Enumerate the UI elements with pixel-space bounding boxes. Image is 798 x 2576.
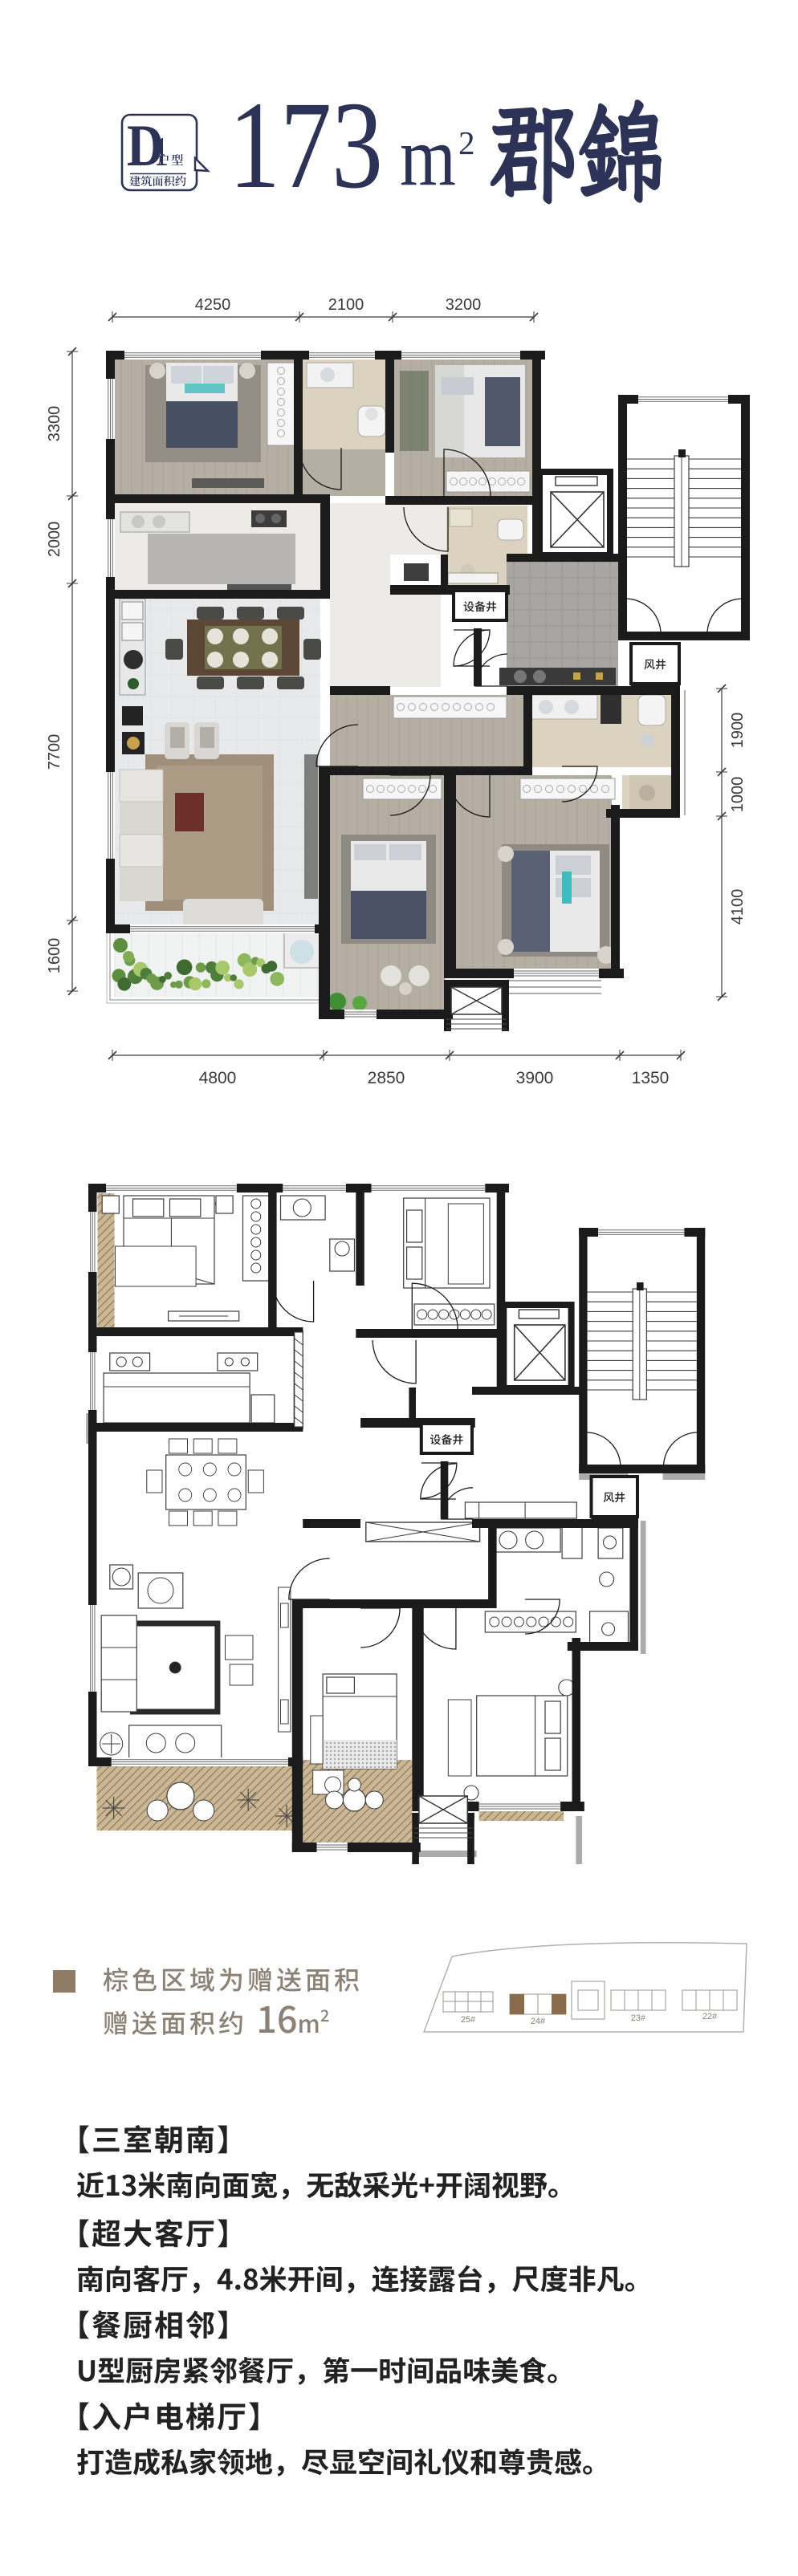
svg-text:4100: 4100: [729, 889, 747, 925]
svg-text:4250: 4250: [195, 296, 231, 314]
svg-text:2850: 2850: [368, 1069, 405, 1087]
svg-text:1600: 1600: [46, 938, 63, 974]
svg-text:m: m: [400, 109, 456, 203]
svg-text:建筑面积约: 建筑面积约: [129, 173, 186, 189]
svg-text:2: 2: [458, 124, 475, 161]
svg-text:设备井: 设备井: [463, 599, 497, 615]
svg-text:7700: 7700: [46, 734, 63, 770]
svg-text:3300: 3300: [46, 406, 63, 442]
svg-text:设备井: 设备井: [430, 1432, 463, 1448]
svg-text:25#: 25#: [461, 2015, 476, 2025]
svg-text:4800: 4800: [199, 1069, 237, 1087]
svg-text:3200: 3200: [446, 296, 482, 314]
svg-text:郡錦: 郡錦: [489, 78, 667, 221]
svg-text:173: 173: [229, 75, 383, 214]
svg-text:2000: 2000: [46, 522, 63, 558]
svg-text:1000: 1000: [729, 777, 747, 813]
svg-text:2100: 2100: [328, 296, 364, 314]
svg-text:1350: 1350: [632, 1069, 670, 1087]
svg-text:1900: 1900: [729, 713, 747, 749]
svg-text:24#: 24#: [531, 2017, 546, 2026]
svg-text:22#: 22#: [702, 2012, 718, 2021]
svg-text:23#: 23#: [631, 2013, 646, 2023]
svg-text:风井: 风井: [603, 1489, 625, 1505]
svg-text:3900: 3900: [516, 1069, 554, 1087]
svg-text:户型: 户型: [157, 151, 185, 169]
svg-text:风井: 风井: [644, 656, 666, 672]
